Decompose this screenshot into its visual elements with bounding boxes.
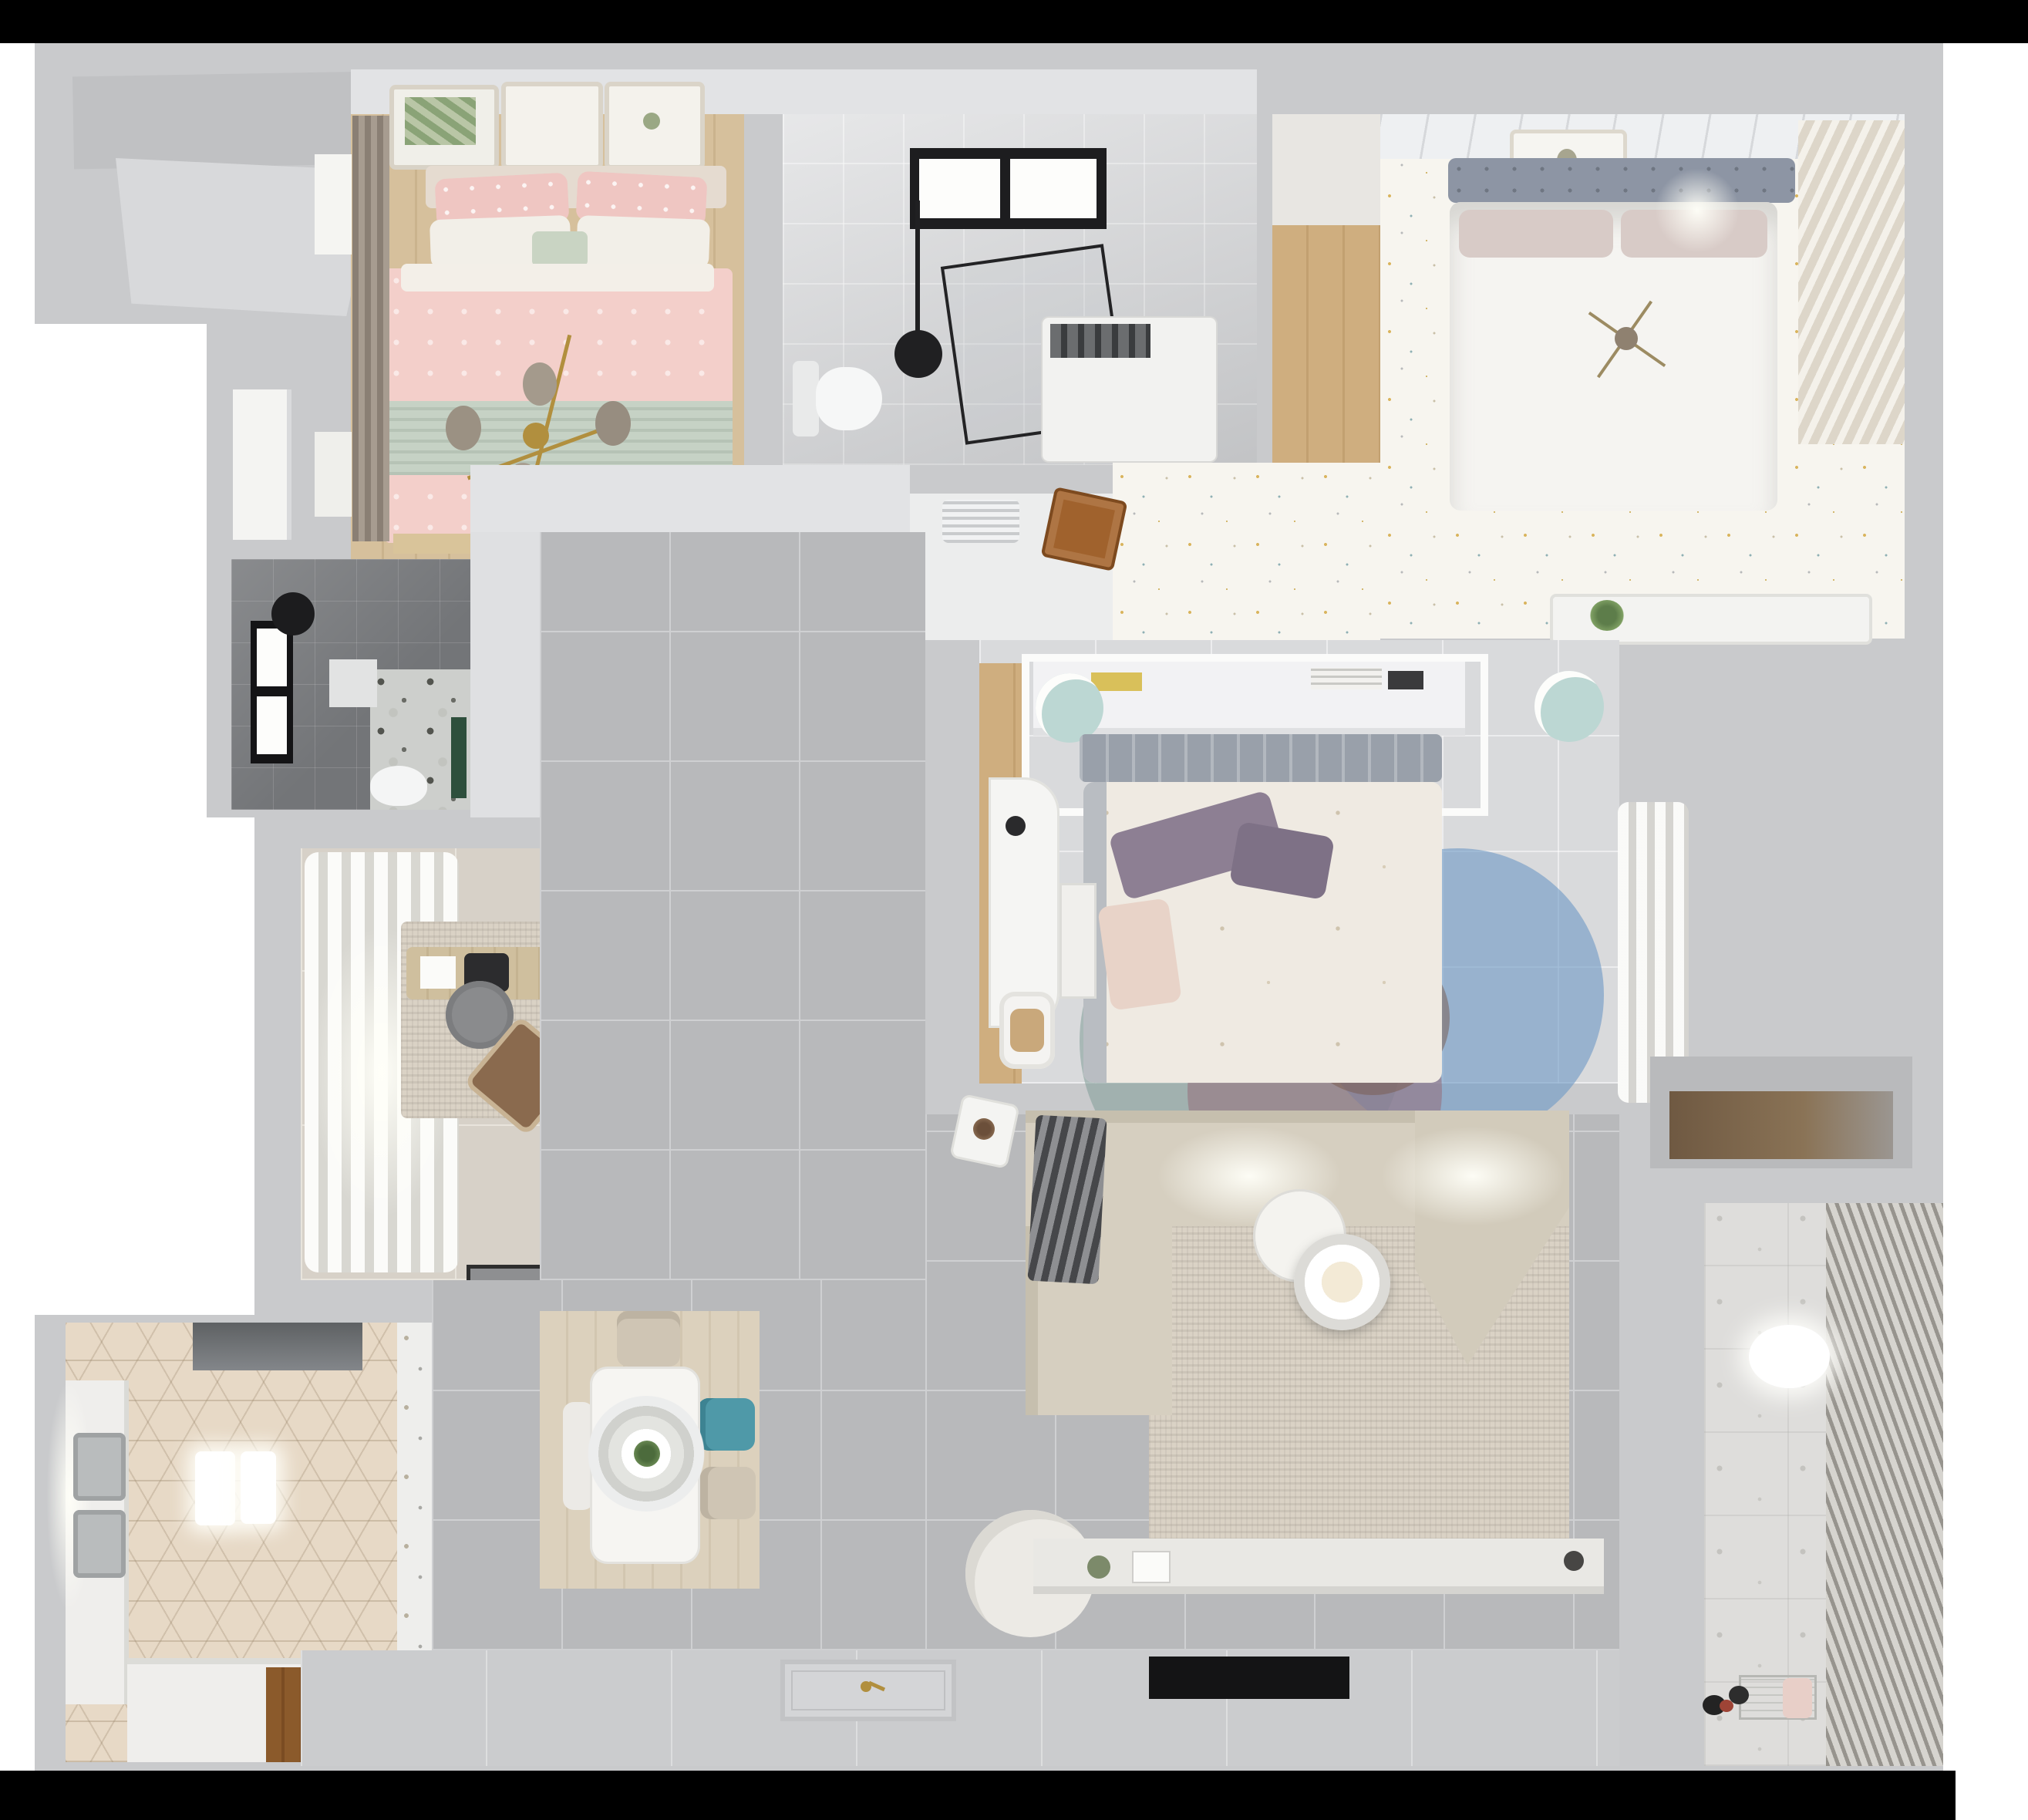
chandelier-hub	[523, 423, 549, 449]
bathroom2-window	[251, 621, 293, 763]
bed3-desk-items	[1006, 816, 1026, 836]
console-decor-plant	[1087, 1555, 1110, 1579]
kitchen-pendant-light-2	[241, 1451, 276, 1524]
toilet-bowl	[816, 367, 882, 430]
console-decor-vase	[1564, 1551, 1584, 1571]
balcony-ceiling-light	[1749, 1325, 1830, 1388]
bed3-drawer-unit	[1059, 883, 1097, 999]
shelf-book-dark	[1388, 671, 1423, 689]
floorplan-render	[0, 0, 2028, 1820]
green-leaf-art	[405, 97, 476, 145]
outside-right-notch	[1962, 162, 2028, 285]
kitchen-hood	[193, 1323, 362, 1370]
sofa-throw-blanket	[1027, 1115, 1107, 1285]
outside-left-upper	[0, 324, 207, 848]
glass-globe	[523, 362, 557, 406]
shower-pipe	[915, 201, 920, 335]
entry-strip-floor	[301, 1650, 1619, 1766]
letterbox-bottom-right-gap	[1956, 1771, 2028, 1820]
kitchen-sink-lower	[73, 1510, 126, 1578]
shelf-plant	[1590, 600, 1624, 631]
outside-left-kitchen	[0, 1311, 35, 1820]
kitchen-glass-partition	[397, 1323, 432, 1650]
kitchen-sink-upper	[73, 1433, 126, 1501]
balcony-pink-bag	[1783, 1678, 1812, 1718]
bedroom2-louver-wardrobe	[1798, 120, 1905, 444]
bathroom2-shower-head	[271, 592, 315, 635]
study-paper	[420, 956, 456, 989]
bathroom2-door	[233, 389, 291, 540]
bedroom2-ceiling-light	[1655, 168, 1740, 253]
hall-white-strip	[470, 532, 540, 817]
glass-globe	[595, 401, 631, 446]
nook-wood-shelf	[1669, 1091, 1893, 1159]
bathroom2-shower-tray	[329, 659, 377, 707]
shelf-book-yellow	[1091, 672, 1142, 691]
bed3-desk-stool	[999, 992, 1055, 1069]
bed3-pillow-blush	[1097, 898, 1182, 1010]
bed2-pillow-left	[1459, 210, 1613, 258]
bedroom2-entry-speckle	[1113, 463, 1380, 640]
window-pane	[1010, 159, 1097, 218]
bathroom1-window	[910, 148, 1107, 229]
shelf-book-stack	[1311, 668, 1382, 689]
window-pane	[919, 159, 1000, 218]
hall-upper	[540, 532, 925, 1280]
entry-doormat	[780, 1660, 956, 1721]
washing-machine	[1043, 318, 1216, 461]
bed3-headboard	[1080, 734, 1442, 782]
dining-chair-top	[617, 1311, 680, 1367]
coffee-table-ring	[1294, 1234, 1390, 1330]
dining-chair-bottom	[700, 1467, 756, 1519]
letterbox-bottom	[0, 1771, 1956, 1820]
console-decor-frame	[1134, 1552, 1169, 1582]
bed3-desk	[989, 777, 1059, 1028]
stool-wood-seat	[1010, 1009, 1044, 1052]
bed2-headboard	[1448, 158, 1795, 203]
open-wood-door	[1040, 487, 1127, 571]
toilet-tank	[793, 361, 819, 436]
balcony-louver-blinds	[1826, 1203, 1943, 1766]
dining-chair-teal	[698, 1398, 755, 1451]
bedroom1-curtain	[352, 116, 389, 541]
window-pane	[257, 629, 287, 686]
ac-vent	[942, 500, 1019, 543]
mint-stool-right	[1534, 671, 1604, 742]
glass-globe	[446, 406, 481, 450]
sofa-light-spot-2	[1380, 1126, 1565, 1226]
window-pane	[257, 696, 287, 754]
kitchen-pendant-light-1	[195, 1451, 235, 1525]
bedroom1-window-glow	[315, 154, 352, 254]
wall-art-script	[501, 82, 603, 170]
corridor-band	[470, 465, 910, 532]
bathroom2-green-accent	[451, 717, 467, 798]
washer-control-panel	[1050, 324, 1150, 358]
bed1-fold-white	[401, 264, 714, 292]
balcony-toy-red	[1720, 1700, 1733, 1712]
bed1-pillow-white-right	[576, 215, 710, 269]
outside-left-lower	[0, 817, 254, 1315]
botanical-motif	[643, 113, 660, 130]
wall-art-green	[389, 85, 499, 170]
shower-head	[894, 330, 942, 378]
side-table-plant	[973, 1118, 995, 1140]
dining-table-plant	[634, 1441, 660, 1467]
wall-art-botanical	[605, 82, 705, 170]
bed2-gold-sprig	[1581, 293, 1673, 386]
toilet-1	[793, 361, 884, 436]
sprig-hub	[1615, 327, 1638, 350]
outside-right	[1943, 332, 2028, 1820]
wall-tv-panel	[1149, 1657, 1349, 1699]
bed1-cushion-sage	[532, 231, 588, 267]
mint-stool-left	[1036, 673, 1103, 743]
letterbox-top	[0, 0, 2028, 43]
tv-console	[1033, 1539, 1604, 1594]
bedroom1-window-glow-2	[315, 432, 352, 517]
toilet-2	[370, 766, 427, 806]
storage-nook	[1650, 1057, 1912, 1168]
